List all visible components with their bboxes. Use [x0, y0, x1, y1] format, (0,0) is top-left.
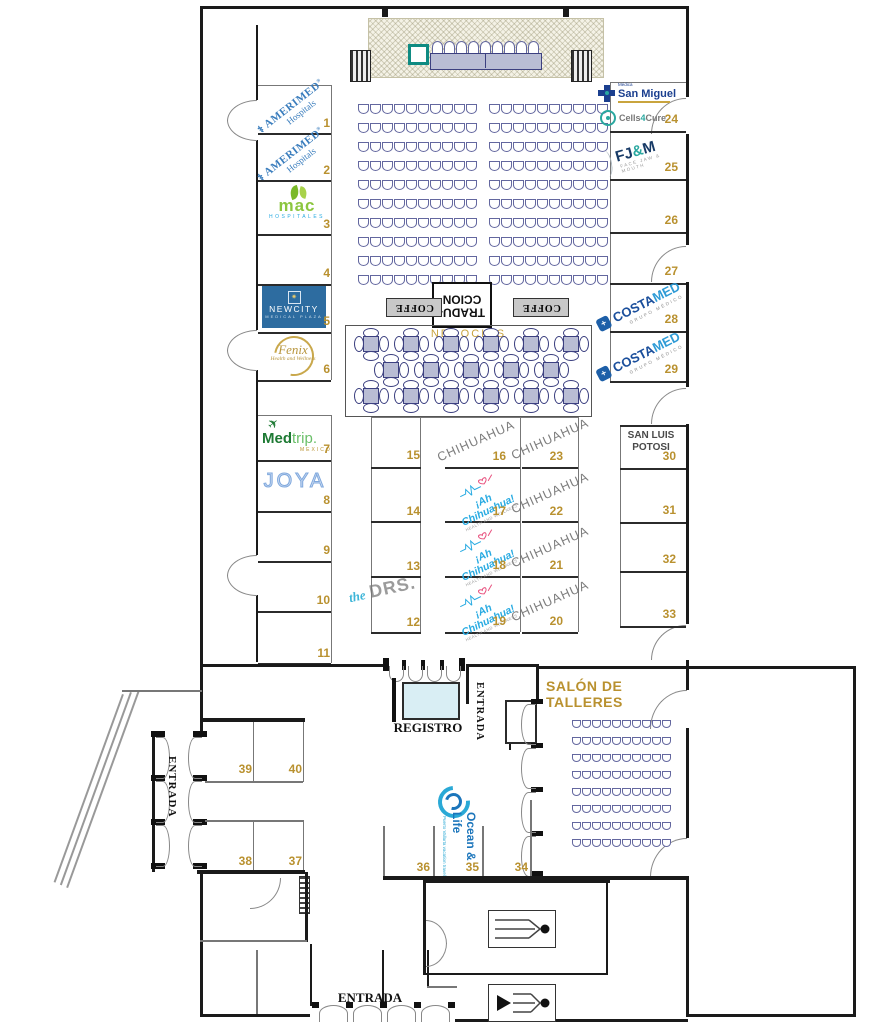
chair-icon [592, 771, 601, 779]
wall-segment [466, 666, 469, 704]
chair-icon [501, 142, 512, 152]
chair-icon [602, 805, 611, 813]
booth-line [371, 467, 421, 469]
chair-row [489, 104, 609, 114]
chair-icon [537, 161, 548, 171]
booth-line [371, 521, 421, 523]
chair-row [489, 275, 609, 285]
chair-icon [561, 104, 572, 114]
booth-number[interactable]: 12 [386, 615, 420, 629]
door-arc [651, 625, 686, 660]
chair-icon [602, 788, 611, 796]
chair-icon [622, 737, 631, 745]
booth-line [620, 468, 686, 470]
booth-number[interactable]: 9 [296, 543, 330, 557]
chair-icon [442, 142, 453, 152]
chair-icon [525, 256, 536, 266]
booth-number[interactable]: 17 [472, 504, 506, 518]
booth-number[interactable]: 31 [642, 503, 676, 517]
door-arc [250, 878, 281, 909]
wall-segment [200, 6, 689, 9]
booth-number[interactable]: 4 [296, 266, 330, 280]
coffee-station: COFFE [513, 298, 569, 317]
chair-icon [537, 275, 548, 285]
booth-number[interactable]: 10 [296, 593, 330, 607]
chair-row [489, 161, 609, 171]
chair-icon [430, 123, 441, 133]
chair-icon [592, 822, 601, 830]
booth-number[interactable]: 1 [296, 116, 330, 130]
booth-number[interactable]: 8 [296, 493, 330, 507]
chair-icon [537, 180, 548, 190]
chair-row [489, 237, 609, 247]
negocios-tables [346, 326, 591, 416]
auditorium-seating-right [489, 104, 609, 294]
chair-icon [585, 180, 596, 190]
booth-line [331, 85, 332, 380]
booth-number[interactable]: 2 [296, 163, 330, 177]
booth-line [258, 511, 331, 513]
chair-icon [582, 805, 591, 813]
chair-icon [632, 788, 641, 796]
chair-icon [358, 256, 369, 266]
chair-icon [612, 720, 621, 728]
chair-icon [489, 256, 500, 266]
wall-segment [423, 880, 610, 883]
chair-icon [585, 256, 596, 266]
booth-number[interactable]: 27 [644, 264, 678, 278]
chair-icon [632, 839, 641, 847]
wall-segment [200, 872, 203, 1016]
round-table-icon [514, 380, 548, 412]
chair-icon [454, 256, 465, 266]
chair-icon [370, 123, 381, 133]
wall-segment [305, 872, 308, 942]
chair-icon [642, 771, 651, 779]
chair-icon [549, 142, 560, 152]
door-jamb [312, 1002, 319, 1008]
logo-mac[interactable]: mac HOSPITALES [268, 188, 326, 220]
chair-icon [370, 104, 381, 114]
chair-icon [525, 161, 536, 171]
chair-icon [561, 123, 572, 133]
chair-icon [501, 256, 512, 266]
chair-icon [525, 275, 536, 285]
booth-line [258, 460, 331, 462]
chair-icon [504, 41, 515, 53]
chair-icon [525, 104, 536, 114]
chair-icon [652, 737, 661, 745]
chair-row [572, 754, 672, 762]
chair-icon [592, 737, 601, 745]
chair-icon [602, 754, 611, 762]
chair-icon [394, 275, 405, 285]
door-arc [408, 666, 423, 682]
wall-segment [200, 940, 307, 942]
door-arc [188, 825, 202, 867]
chair-icon [572, 805, 581, 813]
chair-icon [430, 199, 441, 209]
chair-icon [622, 788, 631, 796]
booth-number[interactable]: 26 [644, 213, 678, 227]
chair-icon [466, 161, 477, 171]
chair-icon [537, 123, 548, 133]
chair-icon [418, 256, 429, 266]
wall-segment [200, 1014, 310, 1017]
chair-icon [525, 142, 536, 152]
chair-icon [513, 256, 524, 266]
floor-plan: TRADU- CCION COFFE COFFE NEGOCIOS ⚕ AMER… [0, 0, 870, 1024]
chair-icon [382, 199, 393, 209]
chair-icon [406, 199, 417, 209]
salon-talleres-label: SALÓN DE TALLERES [546, 678, 692, 710]
chair-icon [662, 839, 671, 847]
chair-icon [382, 256, 393, 266]
chair-icon [418, 180, 429, 190]
booth-number[interactable]: 7 [296, 442, 330, 456]
booth-number[interactable]: 16 [472, 449, 506, 463]
booth-number[interactable]: 18 [472, 558, 506, 572]
wall-segment [686, 424, 689, 624]
chair-icon [406, 237, 417, 247]
chair-icon [597, 199, 608, 209]
chair-icon [582, 720, 591, 728]
wall-segment [256, 370, 258, 555]
chair-icon [358, 237, 369, 247]
chair-row [358, 237, 478, 247]
door-jamb [346, 1002, 353, 1008]
chair-icon [466, 123, 477, 133]
escalator-icon[interactable] [488, 984, 556, 1022]
face-profile-icon [600, 150, 614, 177]
chair-icon [585, 142, 596, 152]
chair-icon [370, 256, 381, 266]
chair-icon [585, 123, 596, 133]
chair-icon [513, 275, 524, 285]
chair-icon [652, 839, 661, 847]
chair-row [358, 104, 478, 114]
booth-line [530, 800, 532, 878]
door-arc [446, 666, 461, 682]
chair-icon [358, 275, 369, 285]
chair-row [358, 142, 478, 152]
booth-number[interactable]: 5 [296, 314, 330, 328]
costamed-cross-icon: + [595, 365, 612, 382]
chair-icon [501, 218, 512, 228]
chair-icon [418, 161, 429, 171]
door-arc [521, 748, 536, 789]
chair-icon [592, 805, 601, 813]
chair-icon [582, 788, 591, 796]
chair-icon [501, 161, 512, 171]
chair-icon [501, 123, 512, 133]
chair-icon [513, 218, 524, 228]
speaker-icon [571, 50, 592, 82]
booth-line [371, 576, 421, 578]
booth-line [205, 820, 303, 822]
chair-icon [537, 104, 548, 114]
booth-line [620, 425, 621, 626]
door-arc [319, 1005, 348, 1022]
chair-row [489, 142, 609, 152]
booth-number[interactable]: 11 [296, 646, 330, 660]
chair-icon [573, 237, 584, 247]
chair-icon [394, 104, 405, 114]
chair-icon [597, 275, 608, 285]
chair-icon [394, 161, 405, 171]
chair-row [358, 180, 478, 190]
chair-icon [622, 805, 631, 813]
chair-icon [382, 104, 393, 114]
chair-icon [632, 805, 641, 813]
chair-icon [382, 275, 393, 285]
booth-line [522, 576, 578, 578]
chair-icon [549, 123, 560, 133]
chair-icon [549, 199, 560, 209]
chair-icon [442, 123, 453, 133]
booth-number[interactable]: 34 [494, 860, 528, 874]
booth-number[interactable]: 32 [642, 552, 676, 566]
wall-segment [686, 134, 689, 245]
chair-icon [662, 737, 671, 745]
chair-icon [632, 720, 641, 728]
chair-icon [585, 161, 596, 171]
door-arc [521, 792, 536, 833]
chair-icon [582, 771, 591, 779]
chair-icon [466, 237, 477, 247]
chair-icon [592, 788, 601, 796]
chair-icon [406, 123, 417, 133]
booth-number[interactable]: 25 [644, 160, 678, 174]
chair-icon [525, 199, 536, 209]
chair-icon [454, 161, 465, 171]
chair-icon [572, 737, 581, 745]
logo-san-miguel[interactable]: Médica San Miguel [598, 80, 686, 106]
chair-icon [442, 218, 453, 228]
chair-icon [430, 180, 441, 190]
booth-line [371, 417, 372, 632]
booth-line [620, 571, 686, 573]
logo-joya[interactable]: JOYA [260, 470, 330, 493]
chair-icon [489, 199, 500, 209]
booth-number[interactable]: 24 [644, 112, 678, 126]
chair-icon [432, 41, 443, 53]
chair-icon [561, 142, 572, 152]
booth-number[interactable]: 13 [386, 559, 420, 573]
chair-icon [597, 256, 608, 266]
chair-icon [370, 161, 381, 171]
ramp-lines [54, 694, 124, 883]
chair-icon [573, 256, 584, 266]
booth-number[interactable]: 29 [644, 362, 678, 376]
door-arc [353, 1005, 382, 1022]
booth-line [258, 611, 331, 613]
booth-number[interactable]: 20 [529, 614, 563, 628]
chair-icon [573, 161, 584, 171]
chair-icon [561, 161, 572, 171]
booth-number[interactable]: 3 [296, 217, 330, 231]
booth-number[interactable]: 38 [218, 854, 252, 868]
booth-line [253, 820, 254, 872]
chair-icon [442, 256, 453, 266]
door-arc [227, 555, 257, 576]
booth-number[interactable]: 6 [296, 362, 330, 376]
chair-icon [454, 142, 465, 152]
chair-icon [394, 180, 405, 190]
registro-desk[interactable] [402, 682, 460, 720]
logo-ah-chihuahua[interactable]: ¡Ah Chihuahua!HEALTH AND WELLNESS [445, 522, 520, 589]
wall-segment [686, 1014, 856, 1017]
door-arc [651, 388, 686, 424]
chair-icon [525, 237, 536, 247]
chair-icon [382, 180, 393, 190]
door-arc [521, 704, 536, 745]
chair-icon [442, 199, 453, 209]
booth-line [303, 820, 304, 872]
chair-icon [549, 256, 560, 266]
booth-number[interactable]: 30 [642, 449, 676, 463]
booth-number[interactable]: 23 [529, 449, 563, 463]
chair-icon [370, 218, 381, 228]
chair-icon [454, 218, 465, 228]
chair-icon [406, 218, 417, 228]
chair-icon [573, 104, 584, 114]
chair-icon [382, 218, 393, 228]
chair-icon [602, 771, 611, 779]
chair-icon [454, 237, 465, 247]
coffee-label: COFFE [395, 302, 434, 313]
chair-icon [394, 142, 405, 152]
entrada-south-label: ENTRADA [320, 990, 420, 1006]
chair-icon [537, 218, 548, 228]
chair-icon [622, 822, 631, 830]
ramp-lines [60, 692, 132, 885]
booth-line [578, 417, 579, 632]
chair-icon [602, 720, 611, 728]
chair-icon [406, 104, 417, 114]
chair-row [358, 199, 478, 209]
costamed-cross-icon: + [595, 315, 612, 332]
chair-icon [652, 771, 661, 779]
wall-segment [536, 666, 856, 669]
chair-icon [585, 104, 596, 114]
traduccion-label-2: CCION [443, 292, 482, 306]
tagline-bar [618, 101, 670, 103]
door-arc [227, 575, 257, 596]
round-table-icon [554, 380, 588, 412]
chair-icon [652, 788, 661, 796]
booth-line [420, 417, 421, 632]
chair-icon [489, 123, 500, 133]
chair-icon [612, 737, 621, 745]
door-arc [188, 737, 202, 779]
booth-number[interactable]: 21 [529, 558, 563, 572]
chair-icon [592, 839, 601, 847]
chair-icon [394, 123, 405, 133]
booth-number[interactable]: 15 [386, 448, 420, 462]
chair-row [572, 822, 672, 830]
chair-icon [513, 237, 524, 247]
chair-icon [370, 142, 381, 152]
booth-number[interactable]: 22 [529, 504, 563, 518]
chair-icon [642, 839, 651, 847]
round-table-icon [434, 380, 468, 412]
chair-icon [652, 805, 661, 813]
logo-oceanlife[interactable]: Ocean & Life Puerto Vallarta vacation tr… [428, 786, 484, 878]
chair-row [358, 256, 478, 266]
chair-icon [525, 180, 536, 190]
escalator-icon[interactable] [488, 910, 556, 948]
chair-icon [585, 237, 596, 247]
chair-icon [662, 771, 671, 779]
chair-icon [612, 771, 621, 779]
booth-number[interactable]: 40 [268, 762, 302, 776]
wall-segment [256, 950, 258, 1016]
chair-icon [537, 256, 548, 266]
chair-icon [466, 180, 477, 190]
chair-icon [642, 822, 651, 830]
booth-number[interactable]: 33 [642, 607, 676, 621]
chair-icon [572, 822, 581, 830]
booth-line [253, 722, 254, 782]
chair-icon [632, 737, 641, 745]
newcity-emblem-icon: ✷ [288, 291, 301, 304]
booth-line [610, 381, 686, 383]
booth-number[interactable]: 37 [268, 854, 302, 868]
chair-icon [466, 104, 477, 114]
booth-line [522, 521, 578, 523]
wall-segment [310, 944, 312, 1006]
wall-segment [686, 880, 689, 1016]
booth-number[interactable]: 28 [644, 312, 678, 326]
door-arc [227, 350, 257, 371]
chair-icon [406, 142, 417, 152]
booth-number[interactable]: 36 [396, 860, 430, 874]
booth-number[interactable]: 14 [386, 504, 420, 518]
chair-icon [406, 161, 417, 171]
chair-icon [642, 754, 651, 762]
chair-icon [572, 720, 581, 728]
chair-icon [662, 720, 671, 728]
chair-icon [622, 771, 631, 779]
booth-number[interactable]: 19 [472, 614, 506, 628]
chair-icon [549, 180, 560, 190]
door-arc [426, 920, 447, 944]
ramp-lines [122, 690, 202, 692]
chair-icon [549, 104, 560, 114]
chair-icon [418, 104, 429, 114]
booth-line [522, 467, 578, 469]
chair-icon [418, 218, 429, 228]
wall-segment [427, 986, 457, 988]
booth-line [620, 626, 686, 628]
ramp-lines [66, 690, 140, 888]
chair-icon [525, 123, 536, 133]
chair-icon [430, 142, 441, 152]
chair-icon [602, 737, 611, 745]
chair-icon [501, 104, 512, 114]
chair-icon [489, 104, 500, 114]
medical-cross-icon [598, 85, 615, 102]
door-arc [227, 330, 257, 351]
chair-icon [430, 237, 441, 247]
chair-icon [537, 199, 548, 209]
chair-icon [573, 199, 584, 209]
booth-line [371, 417, 421, 418]
booth-number[interactable]: 39 [218, 762, 252, 776]
logo-ah-chihuahua[interactable]: ¡Ah Chihuahua!HEALTH AND WELLNESS [445, 467, 520, 534]
chair-icon [642, 720, 651, 728]
